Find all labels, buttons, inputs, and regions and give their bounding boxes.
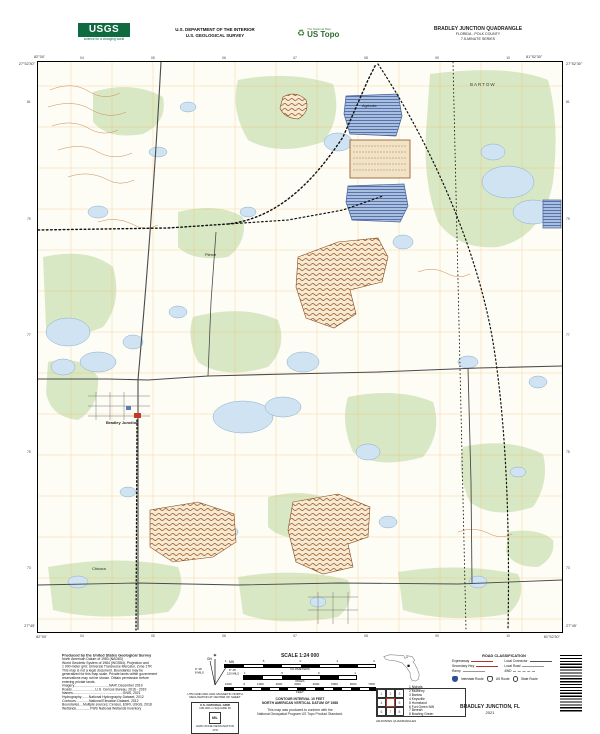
- adj-cell: 2: [386, 689, 395, 698]
- utm-tick: 05: [151, 634, 155, 638]
- ustopo-logo: ♻ The National Map US Topo: [297, 27, 339, 39]
- adj-cell: 8: [395, 707, 404, 716]
- utm-tick: 10: [506, 634, 510, 638]
- usng-gzd: 17R: [193, 729, 237, 733]
- scale-tick: 0: [318, 672, 320, 676]
- adj-cell: 7: [386, 707, 395, 716]
- map-label-bradley-junction: Bradley Junction: [106, 420, 138, 425]
- local-road-line: [522, 666, 544, 667]
- ft-label: FEET: [222, 691, 378, 695]
- interstate-label: Interstate Route: [461, 677, 484, 681]
- utm-tick: 08: [364, 634, 368, 638]
- scale-tick: 1000: [225, 683, 232, 687]
- usgs-tagline: science for a changing world: [78, 37, 130, 41]
- corner-bottom-right-lon: 81°52'30": [516, 635, 560, 639]
- usgs-topo-sheet: { "header": { "usgs_logo": "USGS", "usgs…: [0, 0, 600, 725]
- map-label-agricola: Agricola: [362, 103, 376, 108]
- scale-tick: 1000: [257, 683, 264, 687]
- corner-top-left-lat: 27°52'30": [2, 62, 35, 66]
- utm-ticks-bottom: 04050607080910: [80, 634, 510, 638]
- usgs-logo: USGS science for a changing world: [78, 23, 130, 41]
- utm-tick: 04: [80, 634, 84, 638]
- utm-tick: 81: [566, 100, 570, 104]
- adj-cell: 5: [395, 698, 404, 707]
- utm-ticks-top: 04050607080910: [80, 56, 510, 60]
- true-north-star-icon: ✶: [213, 653, 217, 659]
- barcode: [560, 655, 582, 713]
- scale-tick: 1: [225, 660, 227, 664]
- utm-tick: 06: [222, 634, 226, 638]
- utm-tick: 79: [27, 217, 31, 221]
- corner-bottom-left-lat: 27°45': [2, 624, 35, 628]
- utm-tick: 75: [566, 450, 570, 454]
- map-area: [38, 62, 562, 632]
- utm-tick: 73: [566, 566, 570, 570]
- topo-map-canvas: [38, 62, 562, 632]
- secondary-line: [476, 666, 498, 667]
- scale-tick: 0: [300, 660, 302, 664]
- scale-tick: 7000: [368, 683, 375, 687]
- scale-block: SCALE 1:24 000 1.5012 KILOMETERS 1.501 M…: [222, 653, 378, 717]
- florida-outline-map: [382, 652, 422, 682]
- corner-top-right-lon: 81°52'30": [526, 55, 542, 59]
- ramp-label: Ramp: [452, 669, 461, 674]
- quad-subtitle2: 7.5-MINUTE SERIES: [388, 37, 568, 42]
- quadrangle-title-block: BRADLEY JUNCTION QUADRANGLE FLORIDA - PO…: [388, 26, 568, 41]
- scale-tick: 3000: [294, 683, 301, 687]
- conform-line2: National Geospatial Program US Topo Prod…: [222, 712, 378, 716]
- fwd-line: [513, 671, 535, 672]
- corner-top-left-lon: 82°00': [34, 55, 45, 59]
- scale-tick: 1: [336, 660, 338, 664]
- ramp-line: [463, 671, 485, 672]
- expressway-line: [471, 661, 493, 662]
- scale-tick: 6000: [350, 683, 357, 687]
- sheet-imprint: BRADLEY JUNCTION, FL 2021: [420, 704, 560, 716]
- produced-by-block: Produced by the United States Geological…: [62, 653, 192, 721]
- svg-text:GN: GN: [207, 657, 212, 661]
- utm-tick: 05: [151, 56, 155, 60]
- utm-tick: 07: [293, 56, 297, 60]
- scale-tick: 2000: [276, 683, 283, 687]
- interstate-shield-icon: [452, 676, 458, 682]
- scale-tick: 0: [244, 683, 246, 687]
- utm-tick: 77: [566, 333, 570, 337]
- utm-tick: 79: [566, 217, 570, 221]
- ustopo-brand: US Topo: [307, 31, 339, 39]
- adj-cell: 4: [377, 698, 386, 707]
- us-route-label: US Route: [496, 677, 510, 681]
- dept-line2: U.S. GEOLOGICAL SURVEY: [135, 33, 295, 39]
- utm-tick: 09: [435, 634, 439, 638]
- mine-embankment: [350, 140, 410, 178]
- scale-tick: .5: [280, 672, 283, 676]
- department-heading: U.S. DEPARTMENT OF THE INTERIOR U.S. GEO…: [135, 27, 295, 38]
- utm-tick: 77: [27, 333, 31, 337]
- corner-top-right-lat: 27°52'30": [566, 62, 582, 66]
- adjoining-caption: ADJOINING QUADRANGLES: [376, 719, 466, 723]
- local-connector-line: [530, 661, 552, 662]
- utm-tick: 10: [506, 56, 510, 60]
- utm-tick: 73: [27, 566, 31, 570]
- scale-tick: 2: [373, 660, 375, 664]
- recycle-globe-icon: ♻: [297, 29, 305, 38]
- vertical-datum: NORTH AMERICAN VERTICAL DATUM OF 1988: [222, 701, 378, 705]
- svg-text:8 MILS: 8 MILS: [195, 671, 204, 675]
- adj-cell: 1: [377, 689, 386, 698]
- utm-tick: 06: [222, 56, 226, 60]
- imprint-year: 2021: [420, 710, 560, 716]
- adj-cell-center: [386, 698, 395, 707]
- state-route-label: State Route: [521, 677, 538, 681]
- scale-tick: 4000: [313, 683, 320, 687]
- utm-ticks-right: 8179777573: [566, 100, 570, 570]
- corner-bottom-right-lat: 27°45': [566, 624, 577, 628]
- quad-location-marker: [407, 665, 409, 667]
- utm-tick: 75: [27, 450, 31, 454]
- adj-cell: 3: [395, 689, 404, 698]
- map-label-pierce: Pierce: [205, 252, 216, 257]
- fwd-label: 4WD: [504, 669, 511, 674]
- map-label-bartow: BARTOW: [470, 82, 496, 87]
- state-route-circle-icon: [513, 676, 519, 682]
- usgs-logo-text: USGS: [78, 23, 130, 37]
- utm-tick: 08: [364, 56, 368, 60]
- utm-tick: 09: [435, 56, 439, 60]
- utm-tick: 81: [27, 100, 31, 104]
- utm-tick: 07: [293, 634, 297, 638]
- utm-tick: 04: [80, 56, 84, 60]
- map-label-chicora: Chicora: [92, 566, 106, 571]
- adj-cell: 6: [377, 707, 386, 716]
- produced-line: Wetlands...............FWS National Wetl…: [62, 707, 192, 711]
- usng-square-id: ML: [209, 712, 221, 724]
- scale-tick: .5: [262, 660, 265, 664]
- road-classification: ROAD CLASSIFICATION Expressway Secondary…: [452, 654, 556, 682]
- scale-tick: 1: [354, 672, 356, 676]
- scale-tick: 1: [244, 672, 246, 676]
- produced-lines: North American Datum of 1983 (NAD83)Worl…: [62, 658, 192, 711]
- scale-tick: 5000: [331, 683, 338, 687]
- corner-bottom-left-lon: 82°00': [36, 635, 47, 639]
- utm-ticks-left: 8179777573: [27, 100, 31, 570]
- us-route-shield-icon: [487, 676, 493, 682]
